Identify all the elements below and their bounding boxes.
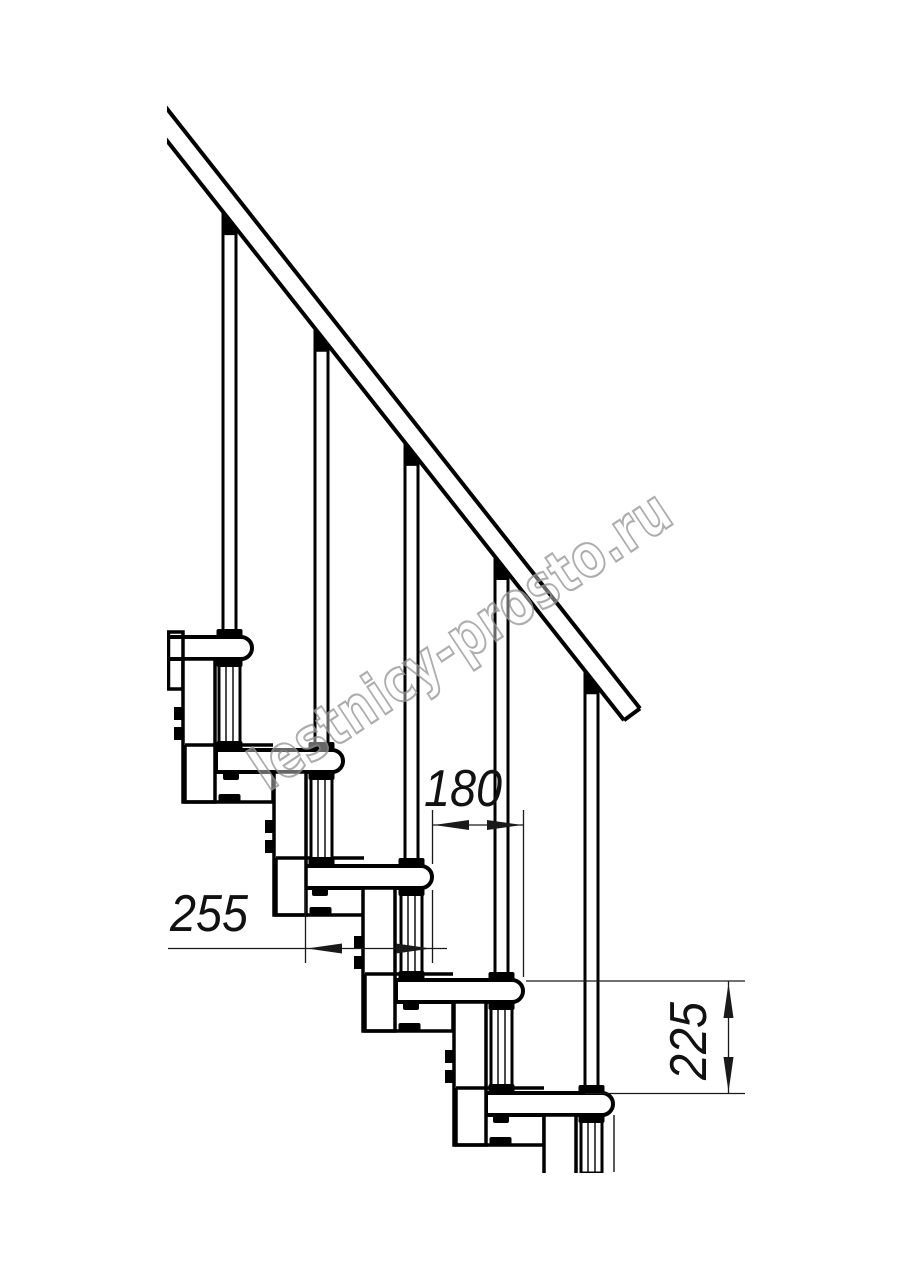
module-2-bolt-lower	[265, 840, 274, 853]
module-1-bolt-lower	[174, 727, 183, 740]
tread-3	[305, 866, 432, 888]
dimension-label-tread: 255	[169, 885, 249, 943]
module-4-bolt-upper	[445, 1050, 454, 1063]
arrowhead-up	[724, 983, 734, 1018]
tread-1	[125, 637, 252, 659]
tread-2-nub	[223, 772, 239, 780]
module-2-foot-bolt	[310, 907, 332, 916]
module-3-bolt-lower	[354, 956, 363, 969]
arrowhead-down	[724, 1057, 734, 1092]
sleeve-2	[309, 771, 335, 866]
dimension-label-run: 180	[424, 760, 502, 818]
arrowhead-left	[434, 820, 469, 830]
baluster-1	[217, 212, 243, 638]
module-2-bolt-upper	[265, 820, 274, 833]
sleeve-3	[399, 887, 425, 980]
watermark-text: lestnicy-prosto.ru	[238, 476, 685, 805]
module-1-foot-bolt	[219, 794, 241, 803]
tread-3-nub	[312, 888, 328, 896]
handrail-end-cap	[624, 709, 640, 721]
sleeve-5	[579, 1114, 605, 1173]
drawing-page: 180 255 225 lestnicy-prosto.ru	[0, 0, 914, 1280]
sleeve-1	[217, 658, 243, 750]
dimension-label-rise: 225	[660, 1001, 718, 1081]
module-3-bolt-upper	[354, 936, 363, 949]
module-3-plate	[363, 888, 395, 1031]
arrowhead-left	[307, 944, 342, 954]
module-1-plate	[183, 659, 215, 802]
baluster-5	[579, 671, 605, 1094]
module-3-foot-bolt	[399, 1023, 421, 1032]
tread-4	[396, 980, 523, 1002]
tread-4-nub	[403, 1002, 419, 1010]
module-4-plate	[454, 1002, 486, 1145]
dimension-rise-225: 225	[526, 981, 745, 1094]
module-4-foot-bolt	[490, 1137, 512, 1146]
staircase-drawing: 180 255 225 lestnicy-prosto.ru	[0, 0, 914, 1280]
module-4-bolt-lower	[445, 1070, 454, 1083]
module-5-plate	[544, 1115, 576, 1258]
tread-5-nub	[493, 1115, 509, 1123]
tread-5	[486, 1093, 613, 1115]
module-1-bolt-upper	[174, 707, 183, 720]
sleeve-4	[489, 1001, 515, 1093]
